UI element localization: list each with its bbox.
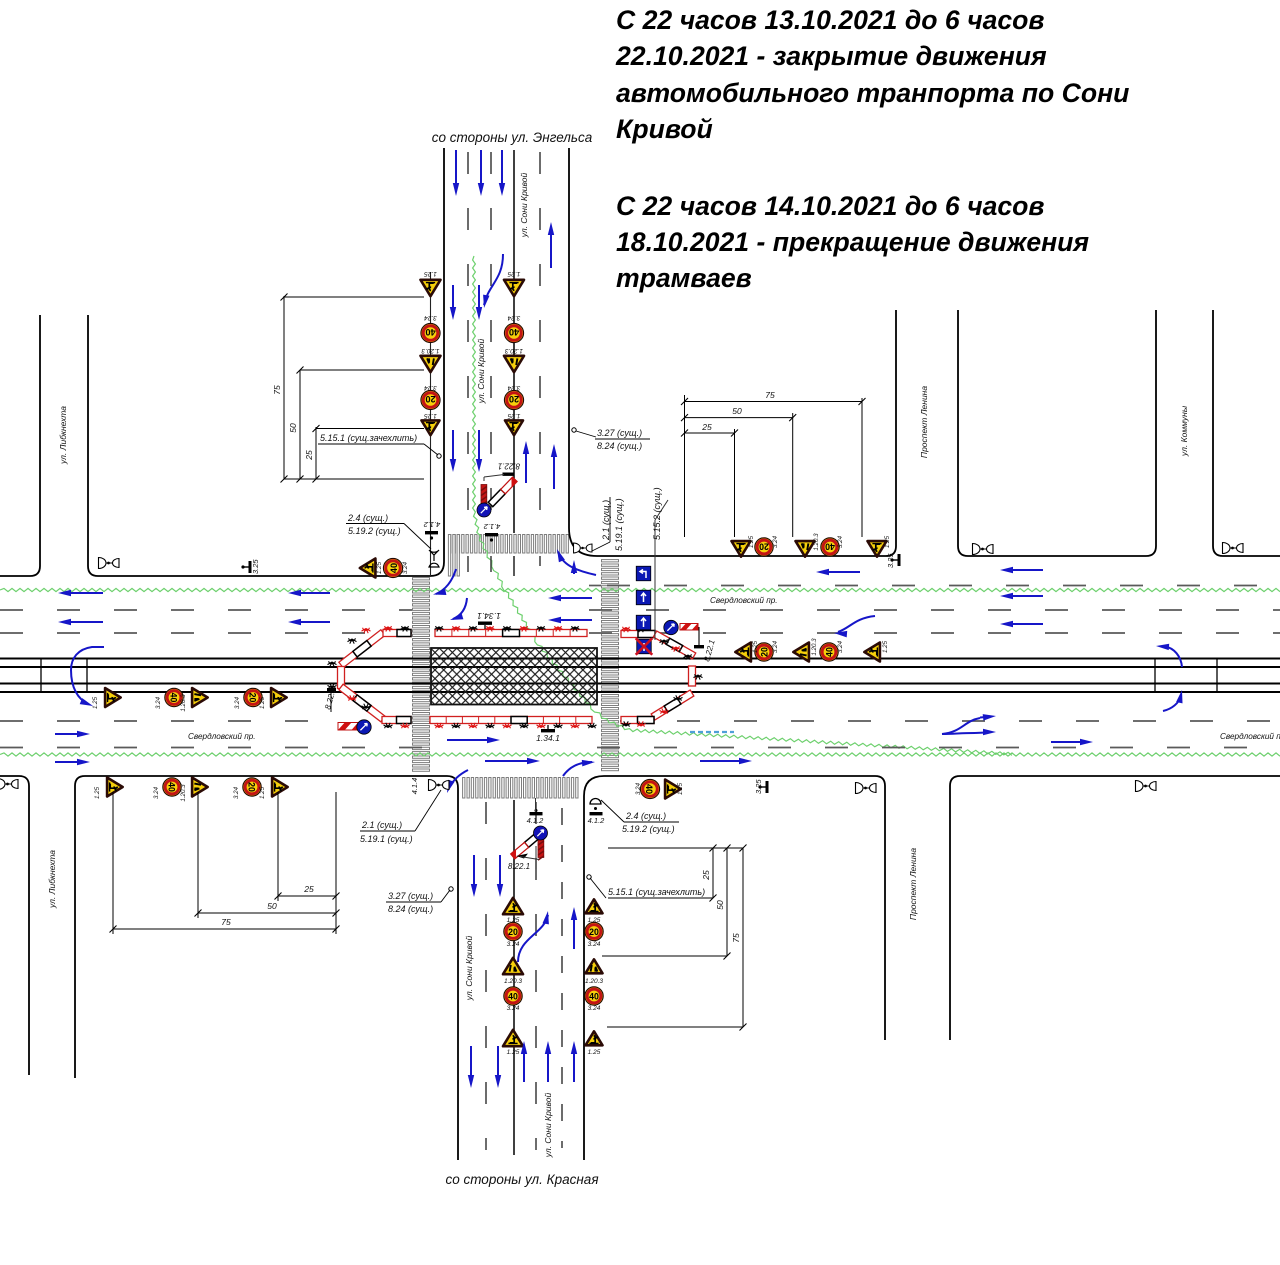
svg-text:1.25: 1.25 xyxy=(884,535,891,548)
svg-text:1.25: 1.25 xyxy=(882,640,889,653)
svg-text:40: 40 xyxy=(166,782,176,792)
svg-text:3.24: 3.24 xyxy=(837,535,844,548)
svg-text:со стороны ул. Энгельса: со стороны ул. Энгельса xyxy=(432,130,593,145)
svg-text:Свердловский пр.: Свердловский пр. xyxy=(188,732,256,741)
svg-text:40: 40 xyxy=(825,647,835,657)
svg-text:1.25: 1.25 xyxy=(424,412,437,419)
svg-text:3.24: 3.24 xyxy=(507,1005,520,1012)
svg-text:20: 20 xyxy=(508,927,518,937)
svg-text:20: 20 xyxy=(246,782,256,792)
svg-text:8.22.1: 8.22.1 xyxy=(508,862,530,871)
svg-text:Свердловский пр.: Свердловский пр. xyxy=(1220,732,1280,741)
svg-text:40: 40 xyxy=(508,992,518,1002)
svg-text:5.15.1 (сущ.зачехлить): 5.15.1 (сущ.зачехлить) xyxy=(320,433,417,443)
svg-text:3.24: 3.24 xyxy=(424,314,437,321)
svg-text:1.20.3: 1.20.3 xyxy=(421,347,439,354)
svg-text:1.34.1: 1.34.1 xyxy=(477,611,501,621)
svg-text:40: 40 xyxy=(644,784,654,794)
svg-text:50: 50 xyxy=(267,901,277,911)
svg-text:3.24: 3.24 xyxy=(588,941,601,948)
svg-text:3.24: 3.24 xyxy=(588,1005,601,1012)
svg-text:3.24: 3.24 xyxy=(155,696,162,709)
svg-text:Проспект Ленина: Проспект Ленина xyxy=(908,848,918,920)
svg-text:3.24: 3.24 xyxy=(635,782,642,795)
svg-text:3.24: 3.24 xyxy=(507,314,520,321)
svg-text:1.25: 1.25 xyxy=(376,561,383,574)
svg-text:4.1.2: 4.1.2 xyxy=(527,816,545,825)
svg-text:40: 40 xyxy=(425,327,435,337)
svg-text:1.20.3: 1.20.3 xyxy=(585,978,603,985)
svg-text:5.19.1 (сущ.): 5.19.1 (сущ.) xyxy=(614,498,624,551)
svg-text:3.24: 3.24 xyxy=(772,640,779,653)
svg-text:1.25: 1.25 xyxy=(507,412,520,419)
svg-text:25: 25 xyxy=(304,450,314,461)
svg-text:1.25: 1.25 xyxy=(424,270,437,277)
svg-text:1.20.3: 1.20.3 xyxy=(813,533,820,551)
svg-text:20: 20 xyxy=(759,541,769,551)
svg-text:8.22.1: 8.22.1 xyxy=(498,462,520,471)
svg-text:20: 20 xyxy=(760,647,770,657)
svg-text:5.19.2 (сущ.): 5.19.2 (сущ.) xyxy=(348,526,401,536)
svg-text:1.25: 1.25 xyxy=(259,696,266,709)
svg-text:75: 75 xyxy=(765,390,775,400)
svg-text:40: 40 xyxy=(509,327,519,337)
svg-text:3.24: 3.24 xyxy=(402,561,409,574)
svg-text:3.24: 3.24 xyxy=(234,696,241,709)
svg-text:1.25: 1.25 xyxy=(588,1049,601,1056)
svg-text:3.25: 3.25 xyxy=(754,779,763,794)
svg-text:1.25: 1.25 xyxy=(507,1049,520,1056)
svg-text:1.20.3: 1.20.3 xyxy=(504,978,522,985)
svg-text:50: 50 xyxy=(288,423,298,433)
svg-text:20: 20 xyxy=(589,927,599,937)
svg-text:1.25: 1.25 xyxy=(752,640,759,653)
svg-text:75: 75 xyxy=(221,917,231,927)
svg-text:ул. Сони Кривой: ул. Сони Кривой xyxy=(464,935,474,1001)
svg-text:5.15.1 (сущ.зачехлить): 5.15.1 (сущ.зачехлить) xyxy=(608,887,705,897)
svg-text:75: 75 xyxy=(731,933,741,943)
svg-text:1.25: 1.25 xyxy=(748,535,755,548)
svg-text:3.24: 3.24 xyxy=(153,786,160,799)
svg-text:3.24: 3.24 xyxy=(507,941,520,948)
svg-text:25: 25 xyxy=(701,422,712,432)
svg-text:4.1.2: 4.1.2 xyxy=(423,520,441,529)
svg-text:3.27 (сущ.): 3.27 (сущ.) xyxy=(388,891,433,901)
svg-text:3.24: 3.24 xyxy=(837,640,844,653)
svg-text:ул. Либкнехта: ул. Либкнехта xyxy=(58,406,68,465)
svg-text:ул. Сони Кривой: ул. Сони Кривой xyxy=(519,172,529,238)
svg-text:8.24 (сущ.): 8.24 (сущ.) xyxy=(597,441,642,451)
svg-text:4.1.2: 4.1.2 xyxy=(588,816,606,825)
svg-text:Проспект Ленина: Проспект Ленина xyxy=(919,386,929,458)
svg-text:25: 25 xyxy=(303,884,314,894)
svg-text:2.1 (сущ.): 2.1 (сущ.) xyxy=(601,500,611,541)
svg-text:ул. Сони Кривой: ул. Сони Кривой xyxy=(543,1092,553,1158)
svg-text:40: 40 xyxy=(825,541,835,551)
svg-text:50: 50 xyxy=(732,406,742,416)
svg-text:20: 20 xyxy=(509,394,519,404)
svg-text:5.19.1 (сущ.): 5.19.1 (сущ.) xyxy=(360,834,413,844)
svg-text:4.1.2: 4.1.2 xyxy=(483,522,501,531)
svg-text:5.19.2 (сущ.): 5.19.2 (сущ.) xyxy=(622,824,675,834)
svg-text:2.4 (сущ.): 2.4 (сущ.) xyxy=(625,811,666,821)
svg-text:20: 20 xyxy=(247,693,257,703)
svg-text:1.20.3: 1.20.3 xyxy=(180,694,187,712)
svg-text:40: 40 xyxy=(589,992,599,1002)
svg-text:3.25: 3.25 xyxy=(251,559,260,574)
svg-text:50: 50 xyxy=(715,900,725,910)
svg-text:1.20.3: 1.20.3 xyxy=(811,638,818,656)
svg-text:1.25: 1.25 xyxy=(507,270,520,277)
svg-text:3.24: 3.24 xyxy=(772,535,779,548)
svg-text:20: 20 xyxy=(425,394,435,404)
svg-text:со стороны ул. Красная: со стороны ул. Красная xyxy=(445,1172,598,1187)
svg-text:5.15.2 (сущ.): 5.15.2 (сущ.) xyxy=(652,487,662,540)
svg-text:ул. Либкнехта: ул. Либкнехта xyxy=(47,850,57,909)
svg-text:1.25: 1.25 xyxy=(259,786,266,799)
svg-text:1.20.3: 1.20.3 xyxy=(505,347,523,354)
svg-text:1.25: 1.25 xyxy=(94,786,101,799)
svg-text:2.4 (сущ.): 2.4 (сущ.) xyxy=(347,513,388,523)
svg-text:3.24: 3.24 xyxy=(233,786,240,799)
svg-text:3.27 (сущ.): 3.27 (сущ.) xyxy=(597,428,642,438)
svg-text:1.34.1: 1.34.1 xyxy=(536,733,560,743)
svg-text:2.1 (сущ.): 2.1 (сущ.) xyxy=(361,820,402,830)
svg-text:ул. Сони Кривой: ул. Сони Кривой xyxy=(476,338,486,404)
svg-text:1.20.3: 1.20.3 xyxy=(180,784,187,802)
svg-text:1.25: 1.25 xyxy=(92,696,99,709)
svg-text:3.25: 3.25 xyxy=(886,553,895,568)
svg-text:75: 75 xyxy=(272,385,282,395)
svg-text:40: 40 xyxy=(389,563,399,573)
svg-text:Свердловский пр.: Свердловский пр. xyxy=(710,596,778,605)
svg-text:ул. Коммуны: ул. Коммуны xyxy=(1179,405,1189,457)
svg-text:4.1.4: 4.1.4 xyxy=(410,778,419,795)
svg-text:25: 25 xyxy=(701,870,711,881)
svg-text:40: 40 xyxy=(168,693,178,703)
svg-text:1.25: 1.25 xyxy=(677,782,684,795)
svg-text:8.24 (сущ.): 8.24 (сущ.) xyxy=(388,904,433,914)
